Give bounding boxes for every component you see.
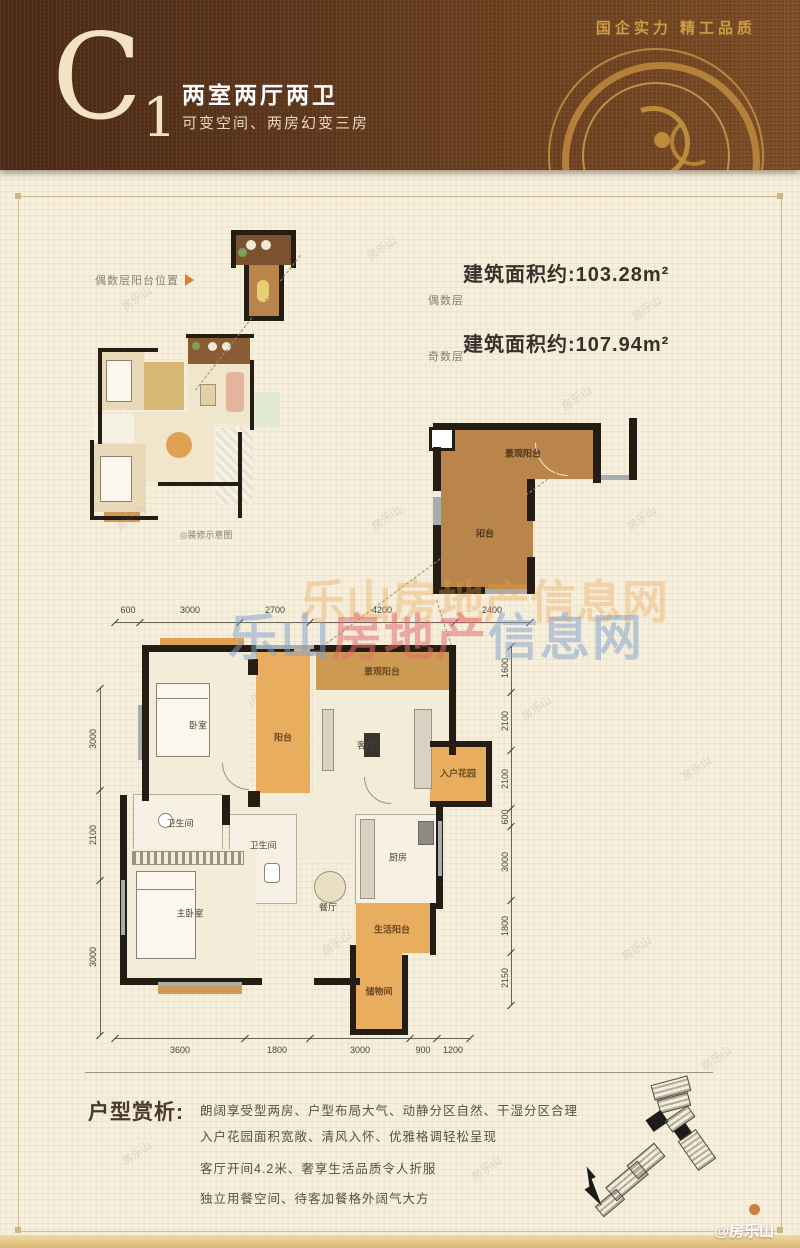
dim-label: 1200 xyxy=(443,1045,463,1055)
bed-icon xyxy=(106,360,132,402)
dim-label: 2100 xyxy=(500,769,510,789)
pillow-line xyxy=(156,683,208,699)
plant-icon xyxy=(192,342,200,350)
dim-label: 2400 xyxy=(482,605,502,615)
label-living: 客厅 xyxy=(357,739,375,752)
small-plan-balcony xyxy=(250,392,280,428)
table-icon xyxy=(246,240,256,250)
section-divider xyxy=(85,1072,713,1073)
dim-label: 600 xyxy=(500,809,510,824)
small-floor-plan: ◎装修示意图 xyxy=(88,332,293,538)
wardrobe-icon xyxy=(132,851,244,865)
pillow-line xyxy=(136,871,194,890)
label-bath1: 卫生间 xyxy=(166,817,193,830)
label-dining: 餐厅 xyxy=(319,901,337,914)
main-floor-plan: 卧室 阳台 景观阳台 客厅 入户花园 卫生间 卫生间 主卧室 餐厅 厨房 生活阳… xyxy=(118,645,510,1040)
label-top-balcony: 景观阳台 xyxy=(364,665,400,678)
dim-label: 1800 xyxy=(267,1045,287,1055)
dim-label: 3000 xyxy=(88,729,98,749)
dining-table-icon xyxy=(314,871,346,903)
sofa-icon xyxy=(226,372,244,412)
dim-line-left xyxy=(100,688,101,1035)
even-floor-area: 建筑面积约:103.28m² xyxy=(463,258,669,287)
unit-subtitle: 可变空间、两房幻变三房 xyxy=(182,112,369,133)
label-balcony: 阳台 xyxy=(274,731,292,744)
small-plan-room xyxy=(144,362,184,410)
dining-set-icon xyxy=(166,432,192,458)
odd-floor-area: 建筑面积约:107.94m² xyxy=(463,328,669,357)
dim-label: 4200 xyxy=(372,605,392,615)
flyer-page: C1 两室两厅两卫 可变空间、两房幻变三房 国企实力 精工品质 偶数层 建筑面积… xyxy=(0,0,800,1248)
brand-slogan: 国企实力 精工品质 xyxy=(596,17,756,38)
table-icon xyxy=(208,342,217,351)
analysis-line: 客厅开间4.2米、奢享生活品质令人折服 xyxy=(200,1158,436,1177)
bottom-gold-band xyxy=(0,1235,800,1248)
dim-label: 2100 xyxy=(88,825,98,845)
detail-label-top: 景观阳台 xyxy=(505,447,541,460)
table-icon xyxy=(261,240,271,250)
balcony-position-text: 偶数层阳台位置 xyxy=(95,275,179,287)
room-balcony xyxy=(256,649,310,793)
header-banner: C1 两室两厅两卫 可变空间、两房幻变三房 国企实力 精工品质 xyxy=(0,0,800,170)
unit-code: C1 xyxy=(52,18,177,145)
odd-floor-label: 奇数层 xyxy=(428,348,464,364)
dim-label: 2700 xyxy=(265,605,285,615)
sofa-icon xyxy=(414,709,432,789)
table-icon xyxy=(200,384,216,406)
label-entry-garden: 入户花园 xyxy=(440,767,476,780)
analysis-line: 入户花园面积宽敞、清风入怀、优雅格调轻松呈现 xyxy=(200,1126,497,1145)
analysis-heading: 户型赏析: xyxy=(88,1096,184,1126)
frame-corner-dot xyxy=(777,1227,783,1233)
unit-code-letter: C xyxy=(52,8,142,146)
even-floor-label: 偶数层 xyxy=(428,292,464,308)
dim-label: 3600 xyxy=(170,1045,190,1055)
label-storage: 储物间 xyxy=(365,985,392,998)
analysis-line: 朗阔享受型两房、户型布局大气、动静分区自然、干湿分区合理 xyxy=(200,1100,578,1119)
frame-corner-dot xyxy=(15,193,21,199)
credit-watermark: @房乐山 xyxy=(714,1220,774,1241)
unit-title: 两室两厅两卫 xyxy=(182,76,338,110)
bed-icon xyxy=(100,456,132,502)
dim-label: 2100 xyxy=(500,711,510,731)
analysis-line: 独立用餐空间、待客加餐格外阔气大方 xyxy=(200,1188,430,1207)
plant-icon xyxy=(238,248,247,257)
mini-balcony-plan xyxy=(213,228,318,330)
dim-label: 3000 xyxy=(350,1045,370,1055)
label-bedroom: 卧室 xyxy=(189,719,207,732)
balcony-position-note: 偶数层阳台位置 xyxy=(95,272,194,288)
frame-corner-dot xyxy=(15,1227,21,1233)
label-master: 主卧室 xyxy=(176,907,203,920)
toilet-icon xyxy=(264,863,280,883)
unit-code-number: 1 xyxy=(142,86,176,149)
dim-label: 900 xyxy=(415,1045,430,1055)
label-life-balcony: 生活阳台 xyxy=(374,923,410,936)
orange-dot xyxy=(749,1204,760,1215)
dim-line-top xyxy=(115,622,530,623)
medallion-ornament-icon xyxy=(538,48,778,170)
label-bath2: 卫生间 xyxy=(249,839,276,852)
dim-label: 3000 xyxy=(180,605,200,615)
tv-cabinet-icon xyxy=(322,709,334,771)
dim-label: 1600 xyxy=(500,658,510,678)
frame-corner-dot xyxy=(777,193,783,199)
dim-label: 3000 xyxy=(500,852,510,872)
dim-label: 600 xyxy=(120,605,135,615)
schematic-caption: ◎装修示意图 xyxy=(180,528,233,541)
dim-label: 3000 xyxy=(88,947,98,967)
label-kitchen: 厨房 xyxy=(389,851,407,864)
dim-label: 1800 xyxy=(500,916,510,936)
stove-icon xyxy=(418,821,434,845)
kitchen-counter-icon xyxy=(360,819,375,899)
dim-label: 2150 xyxy=(500,968,510,988)
small-plan-room xyxy=(216,428,252,504)
arrow-right-icon xyxy=(185,274,194,286)
balcony-detail-plan: 景观阳台 阳台 xyxy=(425,413,650,608)
dim-line-bottom xyxy=(115,1038,470,1039)
